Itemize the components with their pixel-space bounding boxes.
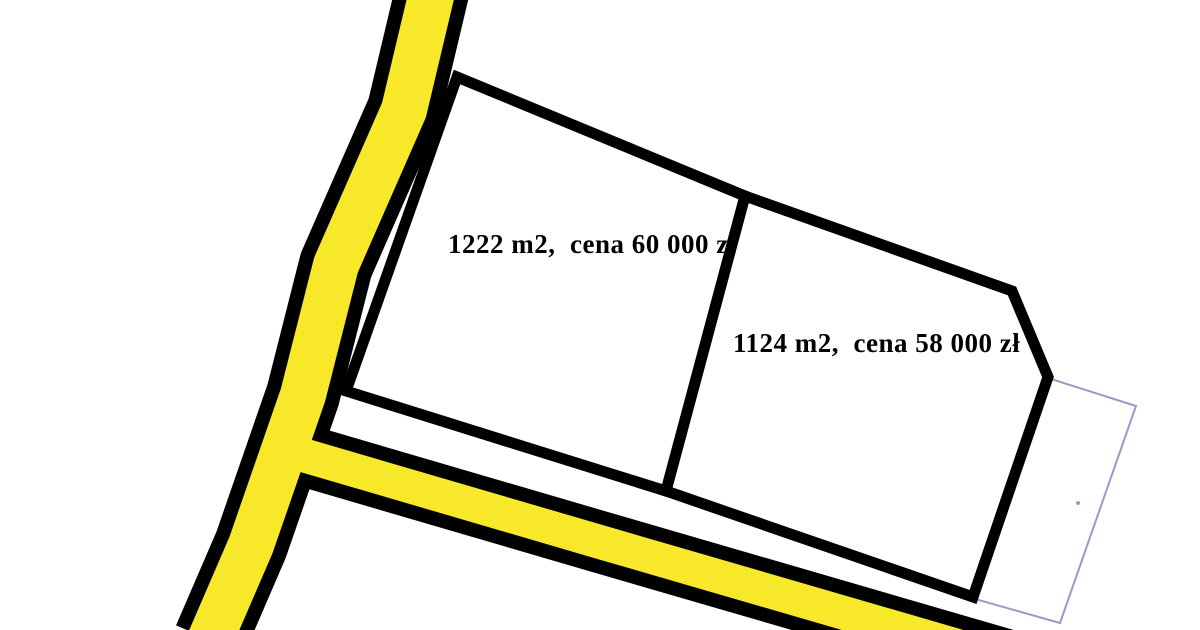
parcel-map-dot [1076, 501, 1080, 505]
plot-1124-label: 1124 m2, cena 58 000 zł [733, 328, 1020, 358]
plot-1222-label: 1222 m2, cena 60 000 zł [448, 229, 737, 259]
land-plot-map: 1222 m2, cena 60 000 zł 1124 m2, cena 58… [0, 0, 1200, 630]
map-canvas: 1222 m2, cena 60 000 zł 1124 m2, cena 58… [0, 0, 1200, 630]
